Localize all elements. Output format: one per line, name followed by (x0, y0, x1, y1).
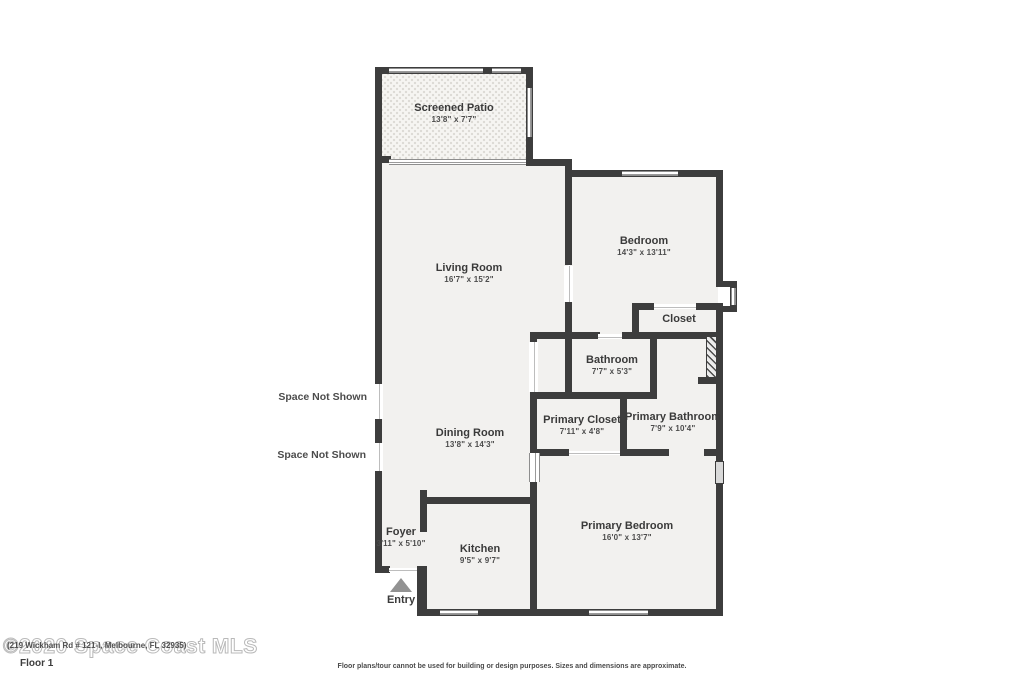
disclaimer-text: Floor plans/tour cannot be used for buil… (0, 663, 1024, 670)
room-label-primary-bathroom: Primary Bathroom 7'9" x 10'4" (625, 411, 721, 434)
room-name: Foyer (376, 526, 425, 539)
wall (375, 67, 382, 163)
room-dims: 9'5" x 9'7" (460, 556, 500, 566)
wall (716, 170, 723, 286)
window (440, 610, 478, 615)
window (715, 461, 724, 484)
wall (530, 392, 537, 616)
window (389, 159, 526, 165)
window (389, 68, 483, 73)
door-opening (598, 334, 622, 339)
room-dims: 7'7" x 5'3" (586, 367, 638, 377)
door-opening (569, 451, 620, 455)
room-dims: 16'7" x 15'2" (436, 275, 503, 285)
room-label-kitchen: Kitchen 9'5" x 9'7" (460, 543, 500, 566)
room-label-dining-room: Dining Room 13'8" x 14'3" (436, 427, 504, 450)
window (529, 453, 540, 482)
door-opening (529, 342, 538, 392)
window (622, 171, 678, 176)
room-label-closet: Closet (662, 313, 696, 326)
door-opening (389, 568, 417, 572)
entry-arrow-icon (390, 578, 412, 592)
room-dims: 14'3" x 13'11" (617, 248, 671, 258)
room-floor (420, 455, 718, 612)
room-label-screened-patio: Screened Patio 13'8" x 7'7" (414, 102, 493, 125)
room-label-living-room: Living Room 16'7" x 15'2" (436, 262, 503, 285)
room-name: Primary Bathroom (625, 411, 721, 424)
watermark-address: (219 Wickham Rd # 121-I, Melbourne, FL 3… (7, 641, 186, 650)
wall (422, 497, 537, 504)
door-opening (654, 304, 696, 309)
shower-hatch (706, 336, 717, 378)
floorplan-canvas: Screened Patio 13'8" x 7'7" Living Room … (0, 0, 1024, 683)
window (589, 610, 648, 615)
window (731, 288, 736, 305)
door-opening (374, 443, 383, 471)
window (492, 68, 521, 73)
window (527, 88, 532, 137)
room-dims: 3'11" x 5'10" (376, 539, 425, 549)
room-name: Primary Bedroom (581, 520, 673, 533)
room-dims: 7'9" x 10'4" (625, 424, 721, 434)
room-name: Kitchen (460, 543, 500, 556)
entry-label: Entry (387, 594, 415, 606)
walls-layer (0, 0, 1024, 683)
door-opening (564, 266, 573, 302)
room-dims: 7'11" x 4'8" (543, 427, 621, 437)
space-not-shown-note-2: Space Not Shown (277, 449, 366, 461)
wall (530, 392, 657, 399)
wall (375, 159, 382, 573)
room-label-bedroom: Bedroom 14'3" x 13'11" (617, 235, 671, 258)
room-name: Living Room (436, 262, 503, 275)
room-label-primary-closet: Primary Closet 7'11" x 4'8" (543, 414, 621, 437)
room-label-primary-bedroom: Primary Bedroom 16'0" x 13'7" (581, 520, 673, 543)
room-dims: 13'8" x 14'3" (436, 440, 504, 450)
room-name: Closet (662, 313, 696, 326)
wall (620, 449, 669, 456)
wall (375, 566, 390, 573)
floor-label: Floor 1 (20, 658, 53, 669)
room-label-bathroom: Bathroom 7'7" x 5'3" (586, 354, 638, 377)
wall (530, 332, 600, 339)
wall (565, 302, 572, 393)
wall (696, 303, 723, 310)
room-name: Dining Room (436, 427, 504, 440)
room-name: Screened Patio (414, 102, 493, 115)
door-opening (374, 384, 383, 419)
space-not-shown-note-1: Space Not Shown (278, 391, 367, 403)
room-name: Primary Closet (543, 414, 621, 427)
room-name: Bedroom (617, 235, 671, 248)
wall (698, 377, 723, 384)
room-name: Bathroom (586, 354, 638, 367)
room-dims: 16'0" x 13'7" (581, 533, 673, 543)
room-label-foyer: Foyer 3'11" x 5'10" (376, 526, 425, 549)
room-dims: 13'8" x 7'7" (414, 115, 493, 125)
wall (650, 338, 657, 399)
